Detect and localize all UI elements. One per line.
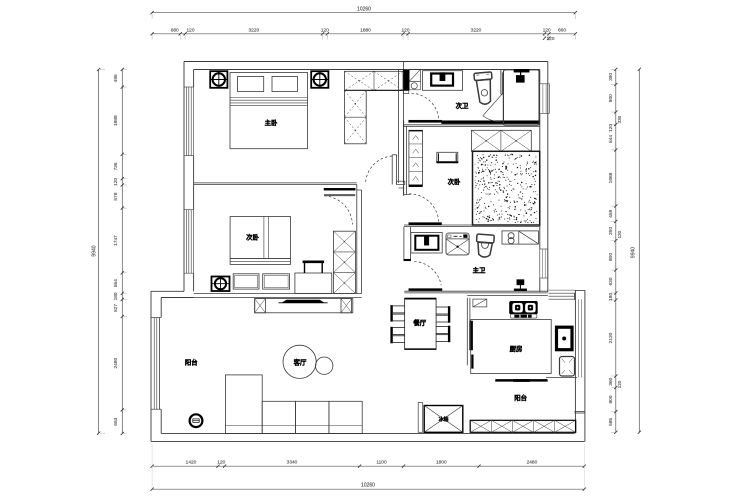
svg-text:1420: 1420 [186, 460, 197, 466]
svg-text:180: 180 [113, 292, 119, 300]
svg-text:客厅: 客厅 [293, 357, 307, 366]
svg-text:459: 459 [608, 209, 614, 217]
svg-text:1800: 1800 [436, 460, 447, 466]
svg-text:653: 653 [113, 417, 119, 425]
svg-text:527: 527 [113, 304, 119, 312]
svg-text:2120: 2120 [608, 332, 614, 343]
svg-text:1888: 1888 [113, 115, 119, 126]
svg-text:120: 120 [617, 380, 622, 388]
svg-text:390: 390 [608, 73, 614, 81]
svg-text:阳台: 阳台 [514, 393, 527, 402]
svg-text:554: 554 [113, 279, 119, 287]
svg-text:2480: 2480 [113, 358, 119, 369]
svg-text:1880: 1880 [360, 27, 371, 33]
svg-text:2480: 2480 [527, 460, 538, 466]
svg-text:1100: 1100 [376, 460, 387, 466]
svg-text:1747: 1747 [113, 235, 119, 246]
svg-text:736: 736 [113, 162, 119, 170]
svg-text:495: 495 [113, 74, 119, 82]
svg-text:次卧: 次卧 [448, 177, 461, 186]
svg-text:10260: 10260 [361, 483, 375, 489]
svg-text:660: 660 [558, 27, 566, 33]
svg-text:3340: 3340 [287, 460, 298, 466]
svg-text:次卧: 次卧 [246, 233, 259, 242]
svg-text:120: 120 [401, 27, 409, 33]
svg-text:1668: 1668 [608, 172, 614, 183]
svg-text:250: 250 [608, 227, 614, 235]
svg-text:120: 120 [543, 27, 551, 33]
svg-text:585: 585 [608, 418, 614, 426]
svg-text:120: 120 [321, 27, 329, 33]
svg-text:180: 180 [608, 293, 614, 301]
svg-text:120: 120 [217, 460, 225, 466]
svg-text:主卫: 主卫 [473, 266, 486, 275]
svg-text:3220: 3220 [248, 27, 259, 33]
svg-text:800: 800 [608, 94, 614, 102]
svg-text:120: 120 [113, 178, 119, 186]
svg-text:360: 360 [608, 377, 614, 385]
svg-text:冰箱: 冰箱 [438, 416, 448, 423]
svg-text:330: 330 [617, 115, 622, 123]
svg-text:3220: 3220 [471, 27, 482, 33]
svg-text:10260: 10260 [357, 7, 371, 13]
svg-text:9940: 9940 [92, 245, 98, 256]
svg-text:680: 680 [171, 27, 179, 33]
svg-text:次卫: 次卫 [456, 101, 469, 110]
svg-text:544: 544 [608, 135, 614, 143]
svg-text:800: 800 [608, 253, 614, 261]
svg-text:800: 800 [608, 395, 614, 403]
svg-text:主卧: 主卧 [265, 118, 278, 127]
svg-text:578: 578 [113, 192, 119, 200]
svg-text:餐厅: 餐厅 [413, 318, 426, 327]
svg-text:厨房: 厨房 [510, 344, 523, 353]
svg-text:9940: 9940 [631, 247, 637, 258]
svg-text:120: 120 [186, 27, 194, 33]
svg-text:630: 630 [608, 277, 614, 285]
svg-text:120: 120 [617, 230, 622, 238]
svg-text:阳台: 阳台 [185, 358, 198, 367]
svg-text:120: 120 [608, 124, 614, 132]
